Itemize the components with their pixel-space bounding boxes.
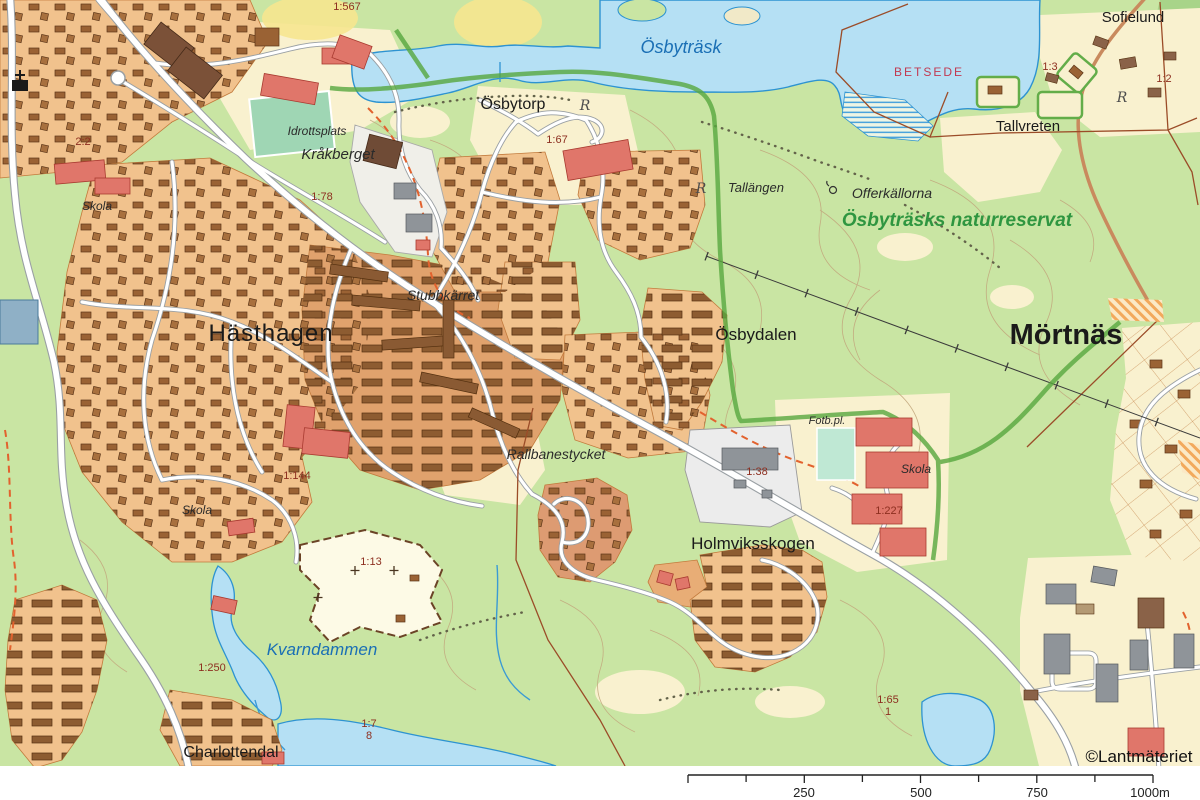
parcel-label: 1 xyxy=(885,706,891,718)
lake-label: Ösbyträsk xyxy=(640,37,722,57)
place-label-hasthagen: Hästhagen xyxy=(208,320,333,347)
parcel-label: 1:144 xyxy=(283,470,311,482)
football-pitch xyxy=(817,428,855,480)
parcel-label: 1:13 xyxy=(360,556,381,568)
ancient-monument-icon: R xyxy=(1116,90,1128,106)
parcel-label: 8 xyxy=(366,730,372,742)
roundabout xyxy=(111,71,125,85)
scale-tick-label: 500 xyxy=(910,785,932,800)
terrain-label-skola-southwest: Skola xyxy=(182,503,212,517)
place-label-betsede: BETSEDE xyxy=(894,65,964,79)
parcel-label: 1:67 xyxy=(546,134,567,146)
attribution-label: ©Lantmäteriet xyxy=(1085,747,1192,766)
scale-tick-label: 250 xyxy=(793,785,815,800)
water-label-kvarndammen: Kvarndammen xyxy=(267,640,378,659)
parcel-label: 1:2 xyxy=(1156,73,1171,85)
terrain-label-offerkallorna: Offerkällorna xyxy=(852,185,932,201)
place-label-tallvreten: Tallvreten xyxy=(996,118,1060,135)
place-label-holmviksskogen: Holmviksskogen xyxy=(691,534,815,553)
lake-island-2 xyxy=(724,7,760,25)
terrain-label-skola-west: Skola xyxy=(82,199,112,213)
terrain-label-skola-east: Skola xyxy=(901,462,931,476)
parcel-label: 1:65 xyxy=(877,694,898,706)
place-label-mortnas: Mörtnäs xyxy=(1010,319,1123,351)
parcel-label: 1:3 xyxy=(1042,61,1057,73)
lake-island xyxy=(618,0,666,21)
parcel-label: 1:7 xyxy=(361,718,376,730)
bottom-strip xyxy=(0,766,1200,800)
farm-1-13 xyxy=(300,530,442,642)
terrain-label-krakberget: Kråkberget xyxy=(301,146,375,163)
parcel-label: 1:567 xyxy=(333,1,361,13)
building-bluegray xyxy=(0,300,38,344)
terrain-label-idrottsplats: Idrottsplats xyxy=(288,124,347,138)
parcel-label: 2:2 xyxy=(75,136,90,148)
place-label-sofielund: Sofielund xyxy=(1102,9,1165,26)
scale-tick-label: 750 xyxy=(1026,785,1048,800)
ancient-monument-icon: R xyxy=(579,98,591,114)
map-canvas[interactable]: 1:567 Ösbyträsk Ösbytorp BETSEDE Sofielu… xyxy=(0,0,1200,800)
parcel-label: 1:227 xyxy=(875,505,903,517)
parcel-label: 1:38 xyxy=(746,466,767,478)
map-viewport[interactable]: 1:567 Ösbyträsk Ösbytorp BETSEDE Sofielu… xyxy=(0,0,1200,800)
terrain-label-stubbkarret: Stubbkärret xyxy=(407,287,480,303)
parcel-label: 1:250 xyxy=(198,662,226,674)
ancient-monument-icon: R xyxy=(695,181,707,197)
reserve-label: Ösbyträsks naturreservat xyxy=(842,210,1073,231)
parcel-label: 1:78 xyxy=(311,191,332,203)
place-label-osbydalen: Ösbydalen xyxy=(715,325,796,344)
place-label-osbytorp: Ösbytorp xyxy=(481,95,546,113)
terrain-label-rallbanestycket: Rallbanestycket xyxy=(507,446,607,462)
terrain-label-tallangen: Tallängen xyxy=(728,180,784,195)
terrain-label-fotbpl: Fotb.pl. xyxy=(809,415,846,427)
place-label-charlottendal: Charlottendal xyxy=(183,744,278,761)
scale-tick-label: 1000m xyxy=(1130,785,1170,800)
